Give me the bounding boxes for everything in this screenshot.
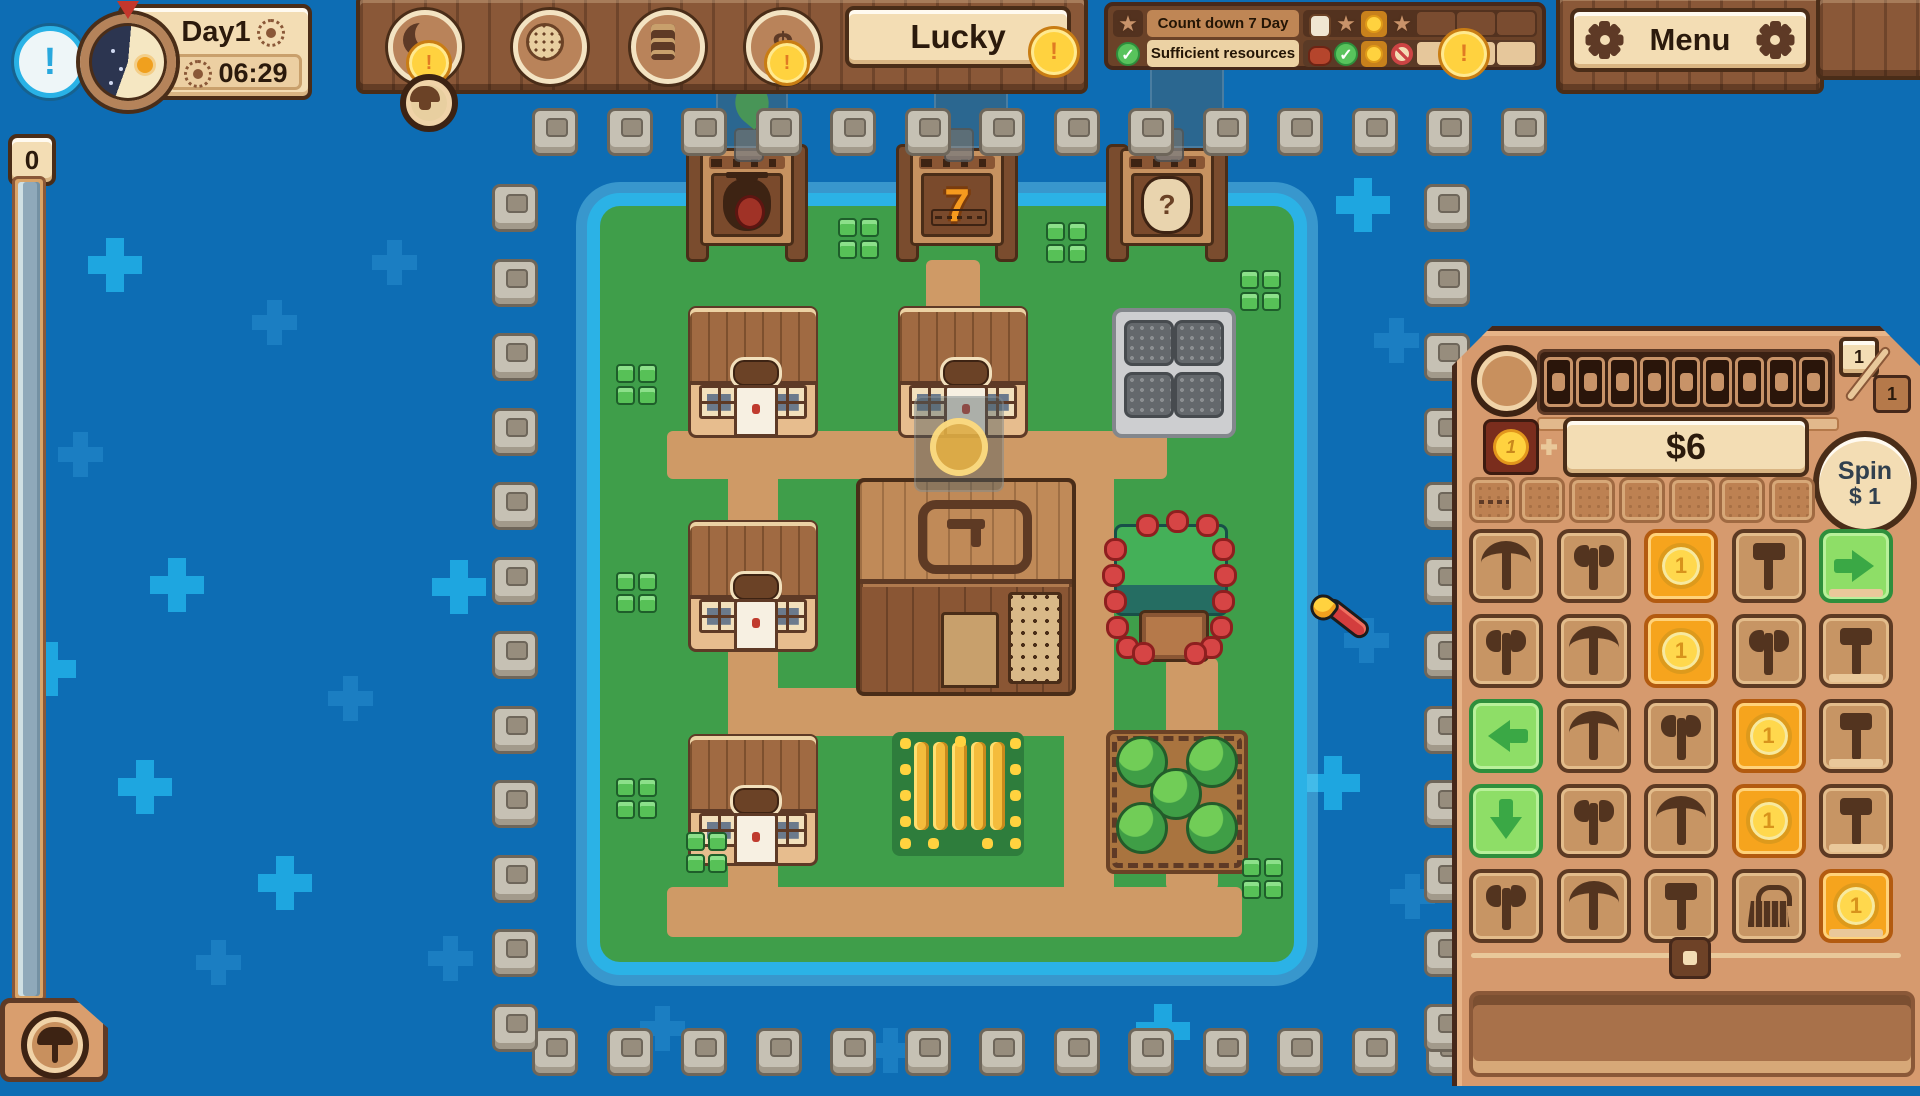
- reel-window: [1608, 357, 1637, 407]
- slot-tile-hammer[interactable]: [1644, 869, 1718, 943]
- pickaxe-icon: [1648, 788, 1714, 854]
- water-cross-decor: [196, 940, 242, 986]
- dock-post-icon: [607, 108, 653, 156]
- time-label: 06:29: [218, 58, 287, 89]
- tree-icon: [1116, 802, 1168, 854]
- arrow-down-icon: [1490, 799, 1522, 843]
- slot-tile-hammer[interactable]: [1819, 784, 1893, 858]
- quest-title: Count down 7 Day: [1147, 10, 1299, 37]
- hall-window-panel: [1008, 592, 1062, 684]
- quest-title: Sufficient resources: [1147, 40, 1299, 67]
- wheat-field[interactable]: [892, 732, 1024, 856]
- berry-icon: [1166, 510, 1189, 533]
- quest-lead-star: [1113, 10, 1143, 37]
- dock-post-icon: [1424, 259, 1470, 307]
- water-cross-decor: [372, 240, 418, 286]
- berry-icon: [1102, 564, 1125, 587]
- slot-tile-pickaxe[interactable]: [1469, 529, 1543, 603]
- berry-icon: [1184, 642, 1207, 665]
- check-icon: [1333, 41, 1359, 67]
- basket-icon: [1736, 873, 1802, 939]
- coin-icon: 1: [1746, 713, 1792, 759]
- dock-post-icon: [1054, 108, 1100, 156]
- sprout-patch: [616, 572, 656, 612]
- axe-icon: [1473, 873, 1539, 939]
- reel-window: [1640, 357, 1669, 407]
- tray-slot[interactable]: [1569, 477, 1615, 523]
- dock-post-icon: [1426, 108, 1472, 156]
- berry-icon: [1132, 642, 1155, 665]
- berry-icon: [1212, 590, 1235, 613]
- dock-post-icon: [1424, 184, 1470, 232]
- tray-slot[interactable]: [1719, 477, 1765, 523]
- tray-slot[interactable]: [1519, 477, 1565, 523]
- slot-tile-axe[interactable]: [1644, 699, 1718, 773]
- water-cross-decor: [252, 300, 298, 346]
- slot-tile-hammer[interactable]: [1819, 614, 1893, 688]
- compass-pointer-icon: [117, 1, 139, 30]
- dock-post-icon: [905, 1028, 951, 1076]
- question-pot-icon: ?: [1141, 176, 1193, 234]
- slot-tile-pickaxe[interactable]: [1644, 784, 1718, 858]
- house-building[interactable]: [688, 520, 818, 652]
- coin-icon: 1: [1658, 628, 1704, 674]
- berry-icon: [1214, 564, 1237, 587]
- menu-label: Menu: [1650, 22, 1731, 58]
- sprout-patch: [1242, 858, 1282, 898]
- slot-tile-coin[interactable]: 1: [1819, 869, 1893, 943]
- star-icon: [1389, 11, 1415, 37]
- quest-slot-strip: [1303, 10, 1537, 37]
- berry-icon: [1212, 538, 1235, 561]
- sprout-patch: [686, 832, 726, 872]
- dock-post-icon: [492, 855, 538, 903]
- quest-slot-strip: [1303, 40, 1537, 67]
- town-hall-building[interactable]: [856, 478, 1076, 696]
- message-log[interactable]: [1469, 991, 1915, 1077]
- dock-post-icon: [1352, 108, 1398, 156]
- house-door: [734, 813, 778, 865]
- slot-tile-hammer[interactable]: [1732, 529, 1806, 603]
- sprout-patch: [1046, 222, 1086, 262]
- window-icon: [699, 599, 739, 633]
- slot-tile-pickaxe[interactable]: [1557, 614, 1631, 688]
- sign-tower-moneybag[interactable]: [690, 140, 804, 262]
- coin-alert-badge[interactable]: !: [1028, 26, 1080, 78]
- bet-coin[interactable]: 1: [1483, 419, 1539, 475]
- axe-icon: [1561, 533, 1627, 599]
- house-door: [734, 599, 778, 651]
- slot-tile-pickaxe[interactable]: [1557, 869, 1631, 943]
- slot-machine-panel: 1 1 1 $6 Spin $ 1 11111: [1452, 326, 1920, 1096]
- star-icon: [1333, 11, 1359, 37]
- spin-cost: $ 1: [1849, 484, 1881, 508]
- villager-icon: [1305, 11, 1331, 37]
- umbrella-panel[interactable]: [0, 998, 108, 1082]
- sign-board: 7: [910, 148, 1004, 246]
- dock-post-icon: [1054, 1028, 1100, 1076]
- pickaxe-icon: [1473, 533, 1539, 599]
- buff-tray: [1469, 477, 1815, 523]
- spin-label: Spin: [1838, 458, 1892, 484]
- dock-post-icon: [492, 1004, 538, 1052]
- hammer-icon: [1648, 873, 1714, 939]
- dock-post-icon: [979, 1028, 1025, 1076]
- dock-post-icon: [1128, 108, 1174, 156]
- slot-tile-arrow-right[interactable]: [1819, 529, 1893, 603]
- dock-post-icon: [492, 631, 538, 679]
- dock-post-icon: [1128, 1028, 1174, 1076]
- slot-tile-axe[interactable]: [1732, 614, 1806, 688]
- orchard-field[interactable]: [1106, 730, 1248, 874]
- slot-tile-coin[interactable]: 1: [1644, 614, 1718, 688]
- dock-post-icon: [1277, 108, 1323, 156]
- hall-door: [941, 612, 999, 688]
- mushroom-button[interactable]: [400, 74, 458, 132]
- compass-sun-icon: [137, 57, 153, 73]
- coin-alert-badge[interactable]: !: [764, 40, 810, 86]
- berry-awning: [1114, 524, 1228, 616]
- day-label: Day1: [181, 16, 250, 49]
- tray-slot[interactable]: [1469, 477, 1515, 523]
- dock-post-icon: [492, 482, 538, 530]
- dock-post-icon: [1352, 1028, 1398, 1076]
- dock-post-icon: [492, 408, 538, 456]
- menu-button[interactable]: Menu: [1570, 8, 1810, 72]
- reel-token-icon: [1471, 345, 1543, 417]
- house-building[interactable]: [688, 306, 818, 438]
- ledger-book-icon: [651, 24, 675, 60]
- berry-icon: [1136, 514, 1159, 537]
- dock-post-icon: [492, 333, 538, 381]
- quest-empty-slot: [1497, 12, 1535, 35]
- gear-icon: [1756, 21, 1794, 59]
- money-display: $6: [1563, 417, 1809, 477]
- coin-icon: 1: [1833, 883, 1879, 929]
- water-cross-decor: [88, 238, 142, 292]
- coin-icon: [1361, 11, 1387, 37]
- water-cross-decor: [150, 558, 204, 612]
- reel-strip: [1537, 349, 1835, 415]
- reel-window: [1735, 357, 1764, 407]
- check-icon: [1115, 41, 1141, 67]
- dock-post-icon: [756, 108, 802, 156]
- window-icon: [699, 385, 739, 419]
- slot-tile-axe[interactable]: [1557, 529, 1631, 603]
- pickaxe-icon: [1561, 618, 1627, 684]
- tray-slot[interactable]: [1769, 477, 1815, 523]
- berry-icon: [1104, 538, 1127, 561]
- slot-tile-basket[interactable]: [1732, 869, 1806, 943]
- lion-medal-icon: [526, 23, 564, 61]
- reel-window: [1767, 357, 1796, 407]
- slot-tile-arrow-down[interactable]: [1469, 784, 1543, 858]
- slot-tile-axe[interactable]: [1469, 614, 1543, 688]
- toolbar-button-ledger-book[interactable]: [631, 10, 705, 84]
- dock-post-icon: [1277, 1028, 1323, 1076]
- water-cross-decor: [1306, 756, 1360, 810]
- coin-icon: 1: [1658, 543, 1704, 589]
- water-cross-decor: [1374, 318, 1420, 364]
- dock-post-icon: [1203, 1028, 1249, 1076]
- reel-window: [1576, 357, 1605, 407]
- plus-connector-icon: [1541, 439, 1557, 455]
- coin-icon: 1: [1746, 798, 1792, 844]
- quest-lead-check: [1113, 40, 1143, 67]
- no-icon: [1389, 41, 1415, 67]
- hammer-icon: [1736, 533, 1802, 599]
- dock-post-icon: [681, 108, 727, 156]
- page-counter-bottom: 1: [1873, 375, 1911, 413]
- water-cross-decor: [1336, 178, 1390, 232]
- arrow-left-icon: [1484, 720, 1528, 752]
- dock-post-icon: [532, 108, 578, 156]
- tree-icon: [1186, 802, 1238, 854]
- dock-post-icon: [492, 259, 538, 307]
- dock-post-icon: [830, 1028, 876, 1076]
- dock-post-icon: [492, 929, 538, 977]
- slot-tile-coin[interactable]: 1: [1644, 529, 1718, 603]
- sign-tower-seven[interactable]: 7: [900, 140, 1014, 262]
- dock-post-icon: [532, 1028, 578, 1076]
- sign-tower-question[interactable]: ?: [1110, 140, 1224, 262]
- arrow-right-icon: [1834, 550, 1878, 582]
- star-icon: [1115, 11, 1141, 37]
- reel-window: [1703, 357, 1732, 407]
- tray-slot[interactable]: [1669, 477, 1715, 523]
- dock-post-icon: [830, 108, 876, 156]
- reel-window: [1672, 357, 1701, 407]
- dock-post-icon: [492, 557, 538, 605]
- spin-button[interactable]: Spin $ 1: [1813, 431, 1917, 535]
- water-cross-decor: [58, 432, 104, 478]
- grain-icon: [900, 738, 911, 749]
- slot-tile-axe[interactable]: [1557, 784, 1631, 858]
- dock-post-icon: [756, 1028, 802, 1076]
- slot-tile-hammer[interactable]: [1819, 699, 1893, 773]
- dock-post-icon: [1203, 108, 1249, 156]
- water-cross-decor: [432, 560, 486, 614]
- pickaxe-icon: [1561, 873, 1627, 939]
- sign-board: [700, 148, 794, 246]
- quarry-building[interactable]: [1112, 308, 1236, 438]
- water-cross-decor: [118, 760, 172, 814]
- sprout-patch: [838, 218, 878, 258]
- match-cursor-icon: [1282, 586, 1380, 684]
- ghost-coin-icon: [930, 418, 988, 476]
- pickaxe-icon: [1561, 703, 1627, 769]
- alert-icon[interactable]: !: [14, 26, 86, 98]
- divider-emblem-icon: [1669, 937, 1711, 979]
- sprout-patch: [1240, 270, 1280, 310]
- dock-post-icon: [979, 108, 1025, 156]
- dock-post-icon: [607, 1028, 653, 1076]
- reel-window: [1544, 357, 1573, 407]
- dock-post-icon: [492, 706, 538, 754]
- axe-icon: [1736, 618, 1802, 684]
- axe-icon: [1561, 788, 1627, 854]
- meat-icon: [1305, 41, 1331, 67]
- berry-icon: [1196, 514, 1219, 537]
- gear-icon: [1586, 21, 1624, 59]
- water-cross-decor: [328, 676, 374, 722]
- money-bag-icon: [723, 179, 771, 231]
- slot-tile-pickaxe[interactable]: [1557, 699, 1631, 773]
- house-door: [734, 385, 778, 437]
- hall-emblem-icon: [918, 500, 1032, 574]
- sun-icon: [184, 60, 212, 88]
- reel-window: [1799, 357, 1828, 407]
- day-night-compass: [80, 14, 176, 110]
- berry-icon: [1104, 590, 1127, 613]
- water-cross-decor: [258, 856, 312, 910]
- dock-post-icon: [905, 108, 951, 156]
- sprout-patch: [616, 364, 656, 404]
- coin-icon: [1361, 41, 1387, 67]
- dock-post-icon: [681, 1028, 727, 1076]
- coin-alert-badge[interactable]: !: [1438, 28, 1490, 80]
- dock-post-icon: [1501, 108, 1547, 156]
- toolbar-right-end: [1816, 0, 1920, 80]
- sign-board: ?: [1120, 148, 1214, 246]
- quest-empty-slot: [1497, 42, 1535, 65]
- water-cross-decor: [428, 936, 474, 982]
- slot-tile-coin[interactable]: 1: [1732, 699, 1806, 773]
- sun-icon: [257, 19, 285, 47]
- berry-stand-building[interactable]: [1108, 520, 1234, 668]
- dock-post-icon: [492, 184, 538, 232]
- toolbar-button-lion-medal[interactable]: [513, 10, 587, 84]
- slot-tile-axe[interactable]: [1469, 869, 1543, 943]
- slot-tile-arrow-left[interactable]: [1469, 699, 1543, 773]
- dock-post-icon: [492, 780, 538, 828]
- lucky-banner-label: Lucky: [910, 18, 1005, 56]
- ghost-preview-coin: [914, 396, 1004, 492]
- axe-icon: [1648, 703, 1714, 769]
- slot-tile-coin[interactable]: 1: [1732, 784, 1806, 858]
- tray-slot[interactable]: [1619, 477, 1665, 523]
- progress-dashes-icon: [931, 209, 987, 226]
- sprout-patch: [616, 778, 656, 818]
- axe-icon: [1473, 618, 1539, 684]
- progress-gauge: [12, 176, 46, 1002]
- dirt-path: [667, 887, 1242, 937]
